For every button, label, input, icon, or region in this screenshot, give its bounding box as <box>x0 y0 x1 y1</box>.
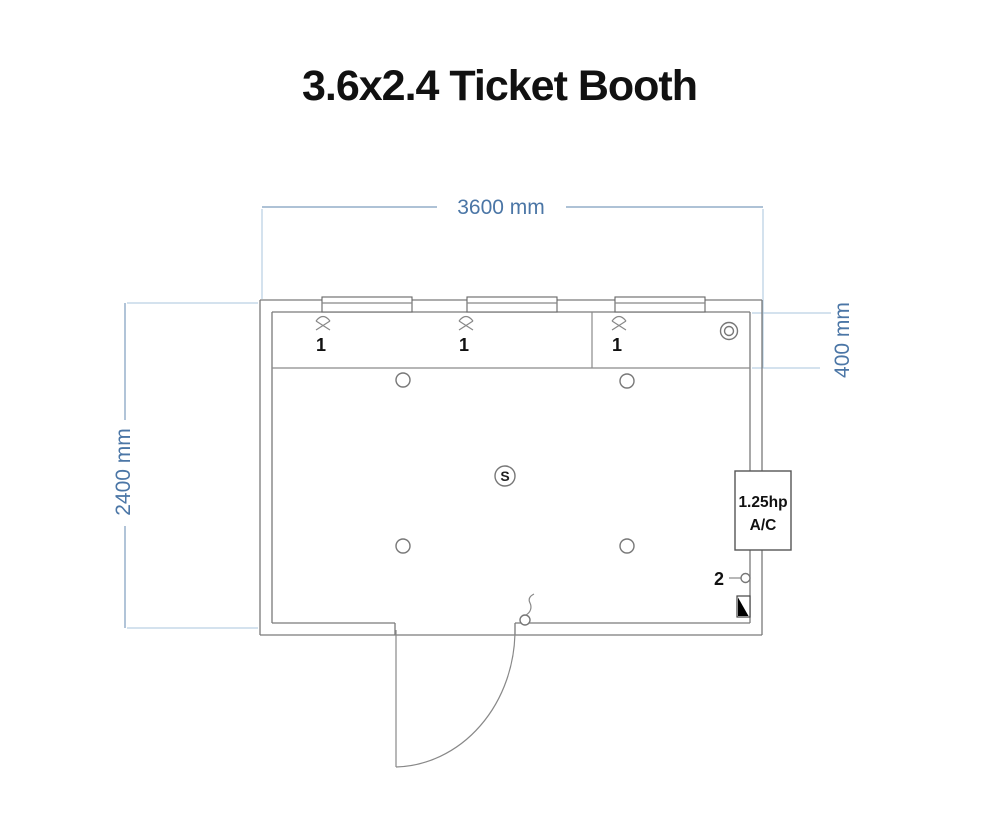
counter-depth-dimension: 400 mm <box>752 302 854 378</box>
ac-unit: 1.25hp A/C <box>735 471 791 550</box>
ceiling-light-icon <box>620 539 634 553</box>
window-frame <box>322 297 412 312</box>
floor-plan-drawing: 3600 mm 2400 mm 400 mm <box>0 0 999 833</box>
ceiling-light-icon <box>396 373 410 387</box>
window-tag-label: 1 <box>316 335 326 355</box>
window-frame <box>467 297 557 312</box>
window-vent-icon <box>459 321 473 330</box>
window-2: 1 <box>459 297 557 355</box>
switch-label: S <box>500 468 509 484</box>
ac-unit-label-line1: 1.25hp <box>738 494 787 511</box>
counter-depth-dimension-label: 400 mm <box>831 302 854 378</box>
floor-plan-page: 3.6x2.4 Ticket Booth 3600 mm 2400 mm 400… <box>0 0 999 833</box>
window-vent-icon <box>612 317 626 322</box>
ceiling-light-icon <box>396 539 410 553</box>
window-vent-icon <box>612 321 626 330</box>
door <box>396 594 534 767</box>
electrical-panel-icon <box>737 596 750 617</box>
outlet-tag-label: 2 <box>714 569 724 589</box>
width-dimension-label: 3600 mm <box>457 196 545 219</box>
door-swing-arc <box>396 630 515 767</box>
height-dimension-label: 2400 mm <box>112 428 135 516</box>
window-tag-label: 1 <box>459 335 469 355</box>
window-1: 1 <box>316 297 412 355</box>
door-switch-icon <box>520 615 530 625</box>
exhaust-fan-icon <box>721 323 738 340</box>
window-vent-icon <box>316 321 330 330</box>
window-vent-icon <box>316 317 330 322</box>
outlet-icon <box>741 574 750 583</box>
window-vent-icon <box>459 317 473 322</box>
window-3: 1 <box>612 297 705 355</box>
width-dimension: 3600 mm <box>262 196 763 368</box>
window-tag-label: 1 <box>612 335 622 355</box>
window-frame <box>615 297 705 312</box>
ceiling-light-icon <box>620 374 634 388</box>
switch-icon: S <box>495 466 515 486</box>
outlet: 2 <box>714 569 750 589</box>
door-switch-squiggle <box>526 594 534 615</box>
ac-unit-label-line2: A/C <box>750 517 777 534</box>
height-dimension: 2400 mm <box>112 303 258 628</box>
exhaust-fan-inner <box>725 327 734 336</box>
